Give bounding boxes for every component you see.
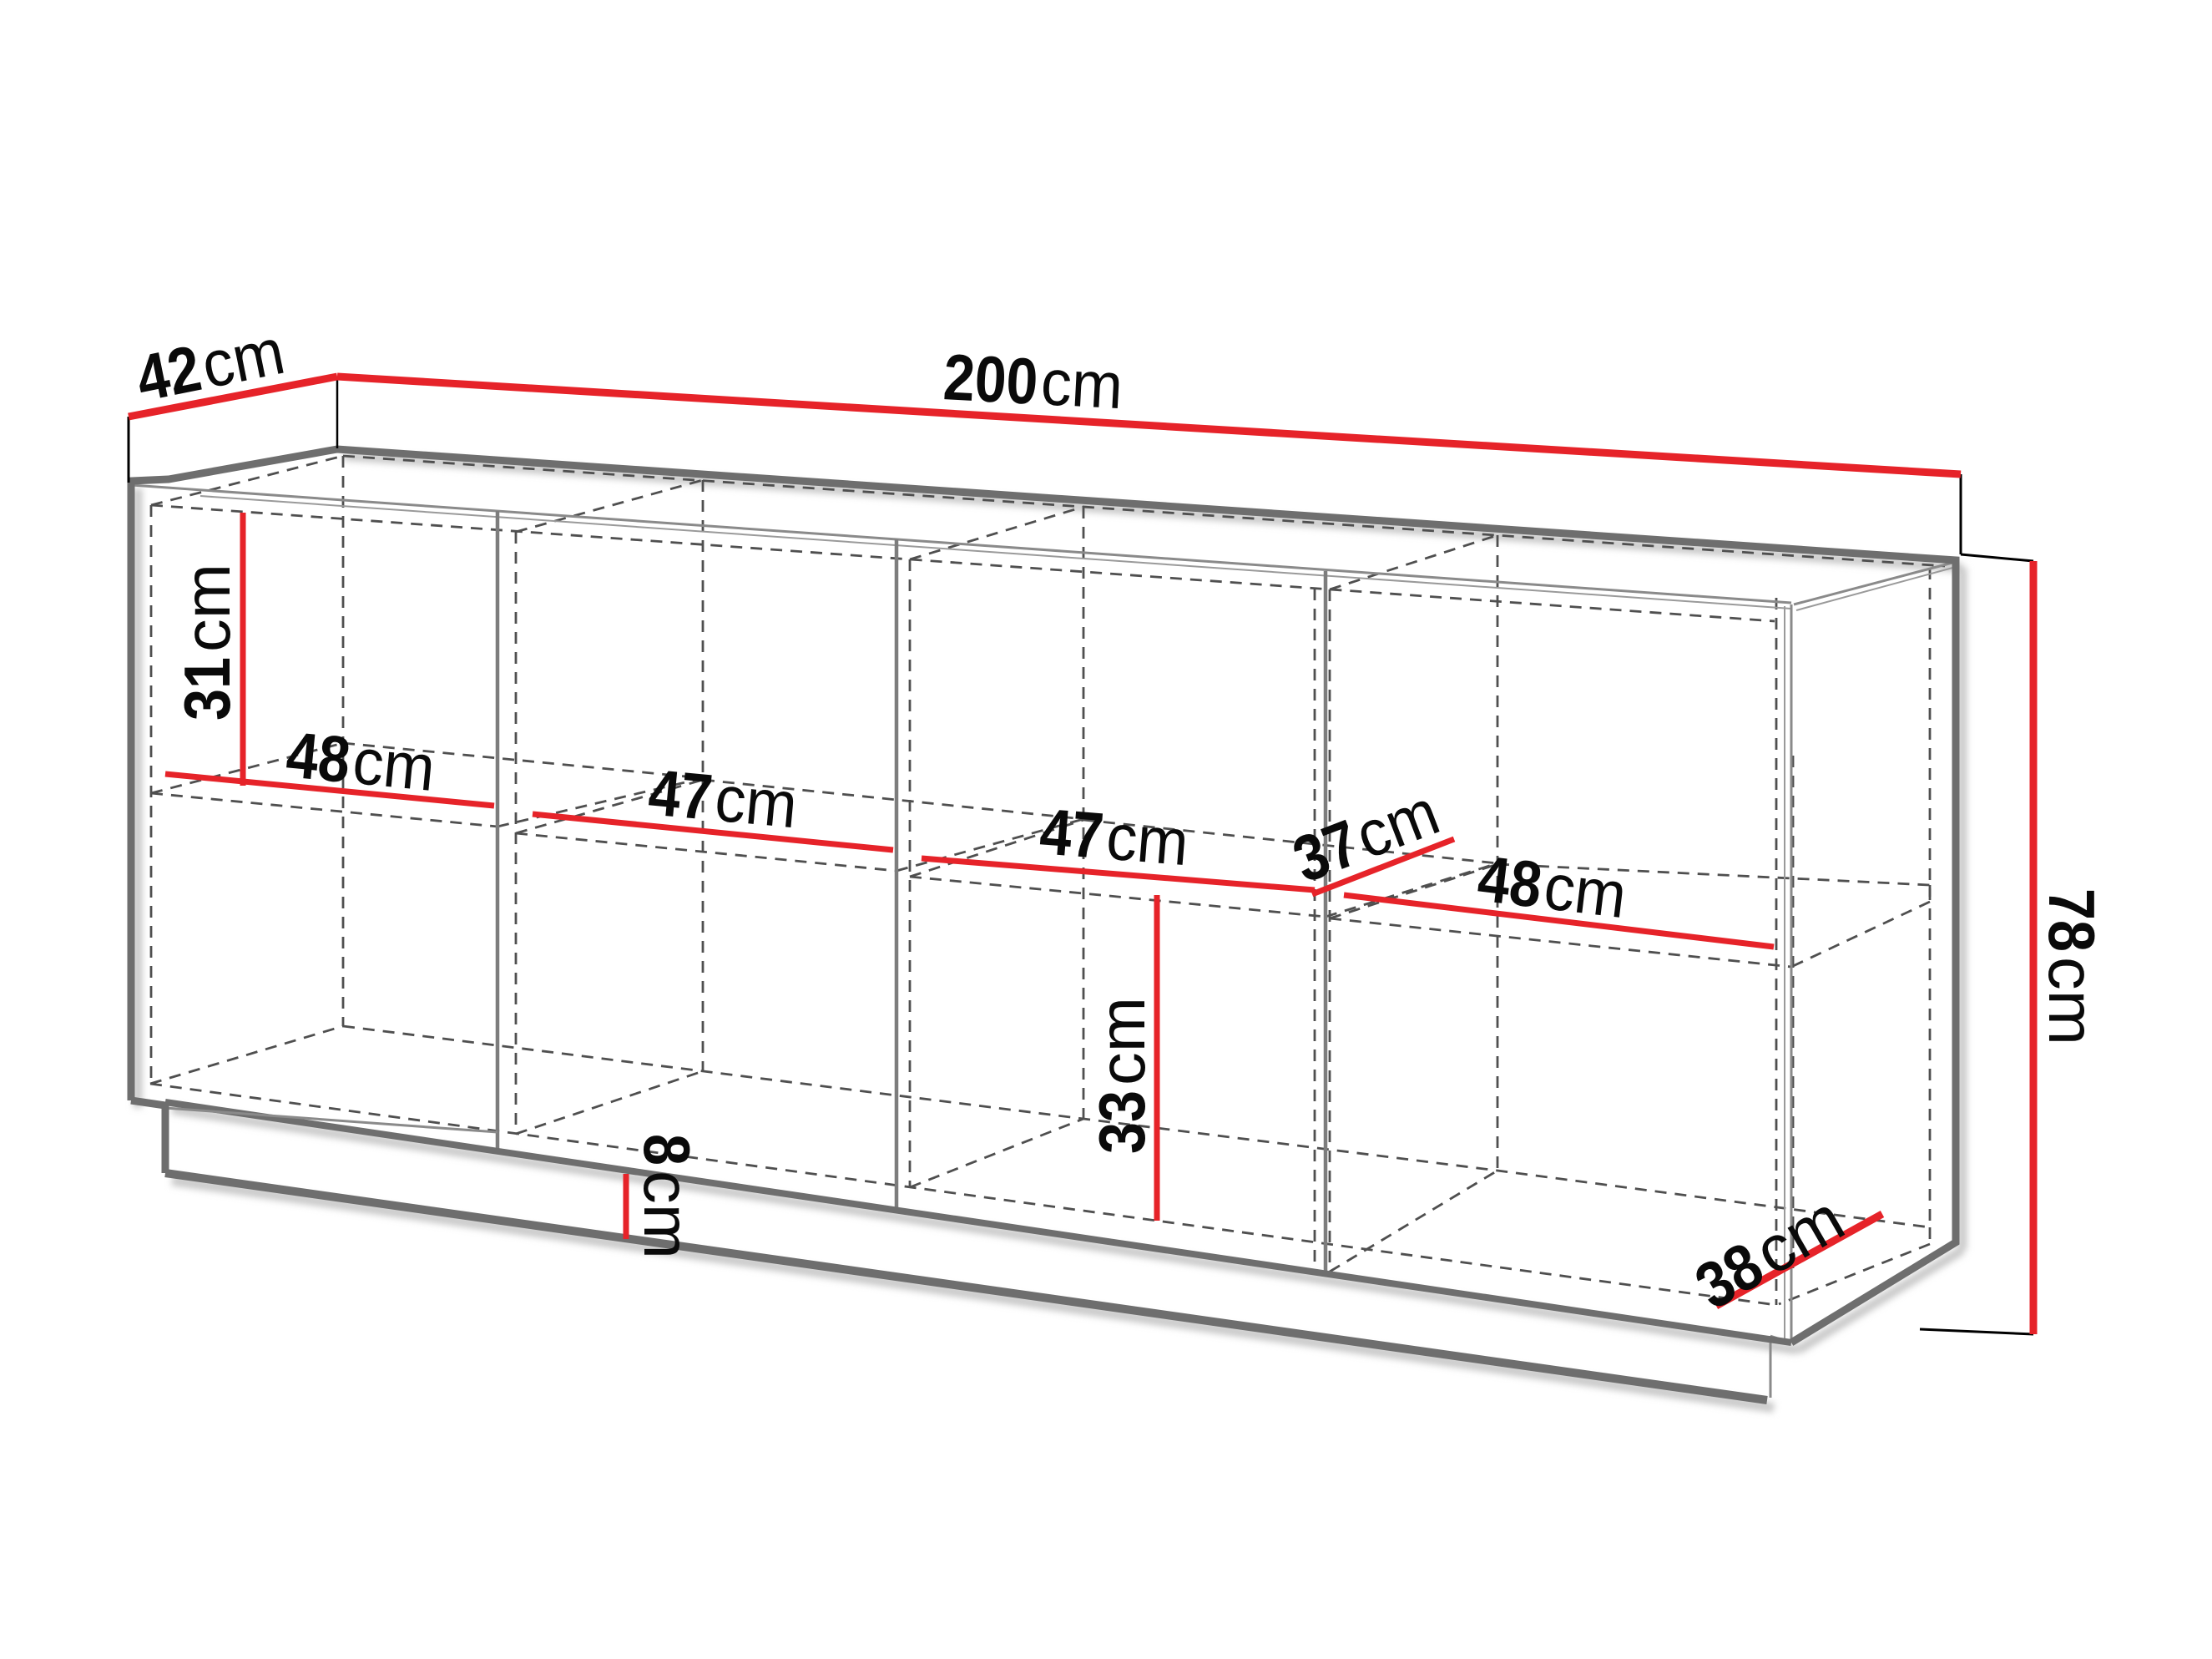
- svg-text:8cm: 8cm: [630, 1134, 704, 1259]
- svg-text:47cm: 47cm: [645, 755, 800, 842]
- svg-text:31cm: 31cm: [170, 564, 244, 721]
- svg-text:48cm: 48cm: [283, 717, 438, 805]
- svg-text:200cm: 200cm: [942, 340, 1124, 422]
- svg-text:33cm: 33cm: [1085, 997, 1159, 1154]
- svg-text:78cm: 78cm: [2035, 888, 2108, 1045]
- svg-text:47cm: 47cm: [1038, 794, 1191, 879]
